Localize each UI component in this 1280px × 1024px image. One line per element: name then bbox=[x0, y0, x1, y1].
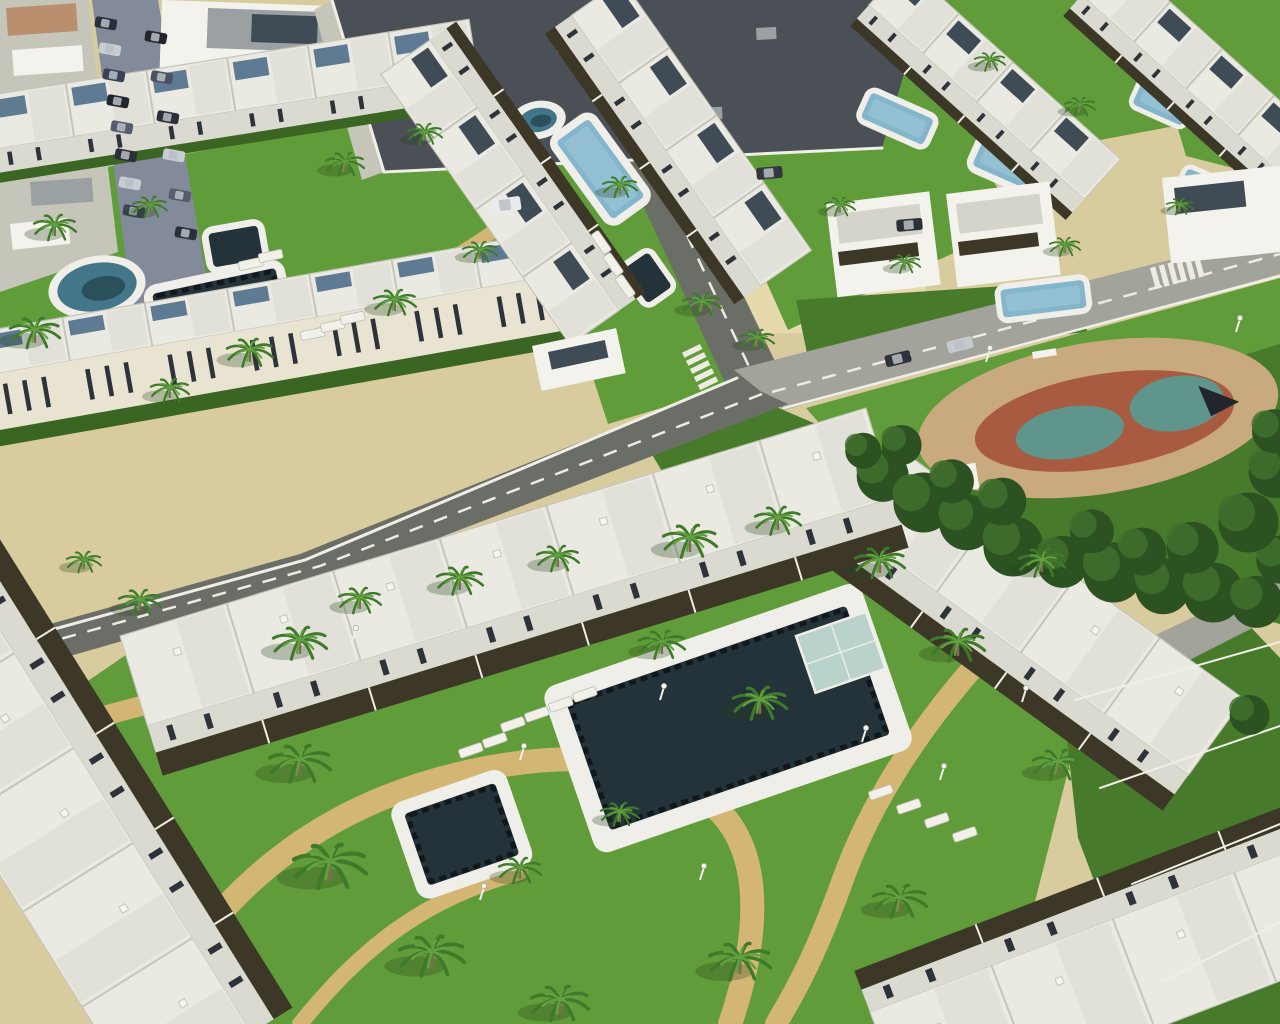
palm-shadow bbox=[364, 303, 404, 316]
lamp-head bbox=[1237, 315, 1242, 320]
tree-highlight bbox=[893, 474, 930, 511]
car-glass bbox=[104, 45, 114, 54]
palm-shadow bbox=[384, 956, 445, 976]
roof-plane bbox=[105, 306, 148, 352]
palm-shadow bbox=[592, 814, 628, 826]
palm-shadow bbox=[919, 645, 969, 662]
palm-shadow bbox=[142, 390, 178, 402]
car-glass bbox=[120, 151, 130, 160]
palm-shadow bbox=[24, 228, 64, 241]
palm-shadow bbox=[595, 187, 627, 198]
lamp-head bbox=[521, 743, 526, 748]
car bbox=[756, 166, 783, 180]
tree-highlight bbox=[930, 460, 957, 487]
villa bbox=[1162, 166, 1280, 264]
tree-highlight bbox=[978, 479, 1008, 509]
palm-shadow bbox=[455, 252, 487, 263]
car-glass bbox=[168, 151, 178, 160]
palm-shadow bbox=[721, 703, 771, 720]
palm-shadow bbox=[628, 645, 671, 659]
chimney bbox=[812, 452, 821, 461]
city-roof bbox=[30, 178, 94, 206]
palm-shadow bbox=[400, 134, 432, 145]
car-glass bbox=[174, 191, 184, 200]
palm-shadow bbox=[329, 601, 369, 614]
car-glass bbox=[150, 33, 160, 42]
palm-shadow bbox=[216, 353, 259, 367]
car-glass bbox=[156, 73, 166, 82]
car-glass bbox=[162, 113, 172, 122]
palm-shadow bbox=[818, 207, 847, 217]
palm-shadow bbox=[527, 559, 567, 572]
palm-shadow bbox=[695, 962, 753, 981]
car-glass bbox=[100, 19, 110, 28]
chimney bbox=[386, 582, 395, 591]
palm-shadow bbox=[59, 562, 91, 573]
car-glass bbox=[124, 179, 134, 188]
palm-shadow bbox=[1043, 247, 1072, 257]
lamp-head bbox=[987, 345, 992, 350]
lamp-head bbox=[1023, 685, 1028, 690]
car-glass bbox=[499, 199, 512, 211]
tree-highlight bbox=[1230, 577, 1262, 609]
palm-shadow bbox=[861, 901, 911, 918]
chimney bbox=[173, 647, 182, 656]
palm-shadow bbox=[317, 164, 353, 176]
chimney bbox=[599, 517, 608, 526]
tree-highlight bbox=[1218, 494, 1255, 531]
lamp-head bbox=[481, 883, 486, 888]
palm-shadow bbox=[518, 1004, 572, 1022]
car-glass bbox=[180, 229, 190, 238]
palm-shadow bbox=[489, 871, 529, 884]
lamp-head bbox=[941, 763, 946, 768]
palm-shadow bbox=[261, 643, 311, 660]
roof-plane bbox=[188, 291, 231, 337]
city-roof-panel bbox=[251, 14, 318, 44]
chimney bbox=[706, 484, 715, 493]
rooftop-unit bbox=[756, 27, 777, 40]
chimney bbox=[493, 550, 502, 559]
tree-highlight bbox=[1166, 523, 1198, 555]
tree-highlight bbox=[1118, 529, 1148, 559]
palm-shadow bbox=[277, 867, 345, 890]
car-glass bbox=[903, 220, 914, 230]
lamp-head bbox=[701, 863, 706, 868]
palm-shadow bbox=[426, 581, 469, 595]
palm-shadow bbox=[1160, 207, 1185, 215]
tree-highlight bbox=[881, 426, 906, 451]
lamp-head bbox=[863, 725, 868, 730]
roof-plane bbox=[270, 277, 313, 323]
aerial-property-render bbox=[0, 0, 1280, 1024]
tree-highlight bbox=[845, 434, 867, 456]
palm-shadow bbox=[255, 764, 313, 783]
palm-shadow bbox=[968, 62, 997, 72]
palm-shadow bbox=[125, 207, 157, 218]
palm-shadow bbox=[109, 603, 149, 616]
palm-shadow bbox=[883, 264, 912, 274]
city-roof bbox=[12, 45, 84, 76]
chimney bbox=[280, 615, 289, 624]
lamp-head bbox=[353, 625, 358, 630]
car-glass bbox=[763, 168, 774, 178]
car-glass bbox=[112, 97, 122, 106]
lamp-head bbox=[661, 683, 666, 688]
palm-shadow bbox=[844, 563, 891, 579]
car-glass bbox=[116, 123, 126, 132]
palm-shadow bbox=[1058, 107, 1087, 117]
palm-shadow bbox=[1022, 765, 1069, 781]
palm-shadow bbox=[1008, 563, 1051, 577]
villa bbox=[946, 181, 1061, 287]
tree-highlight bbox=[1252, 410, 1279, 437]
city-roof bbox=[6, 3, 78, 36]
aerial-render-canvas bbox=[0, 0, 1280, 1024]
palm-shadow bbox=[744, 521, 787, 535]
car bbox=[896, 218, 923, 232]
tree-highlight bbox=[1229, 696, 1254, 721]
palm-shadow bbox=[732, 340, 764, 351]
palm-shadow bbox=[651, 541, 701, 558]
palm-shadow bbox=[0, 333, 45, 349]
palm-shadow bbox=[674, 304, 710, 316]
car-glass bbox=[108, 71, 118, 80]
tree-highlight bbox=[1070, 510, 1097, 537]
